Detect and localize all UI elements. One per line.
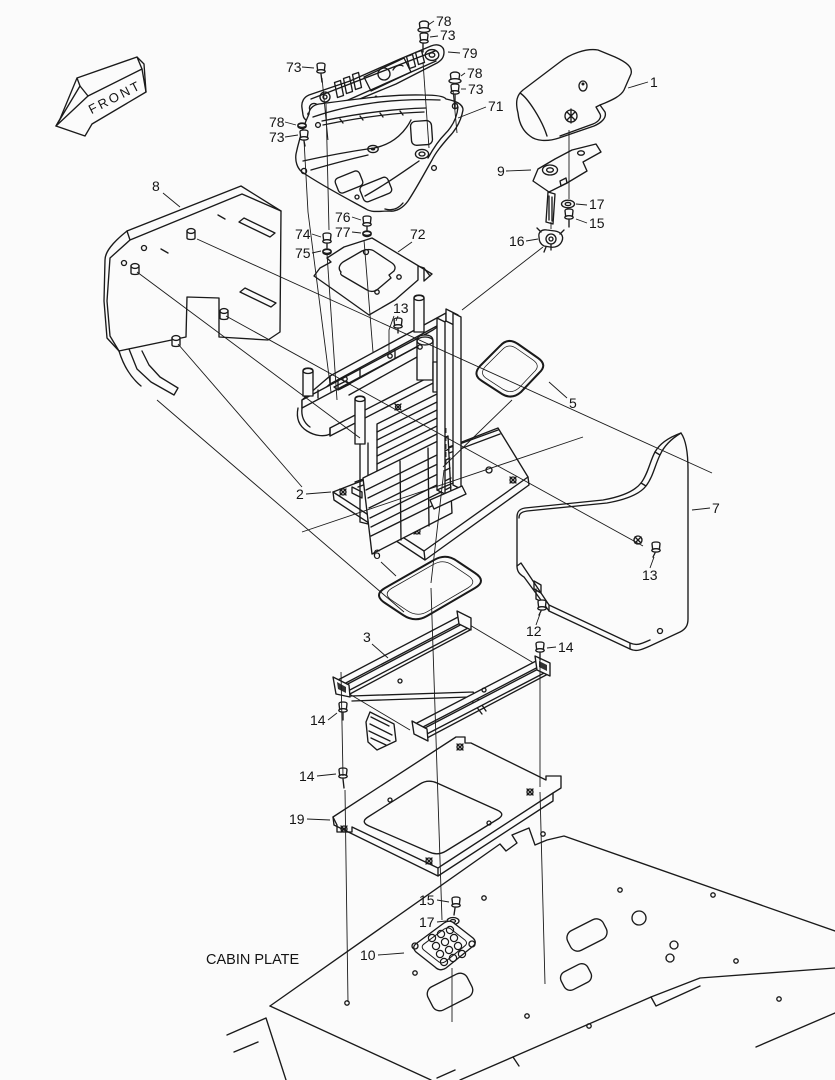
svg-text:17: 17	[419, 914, 435, 930]
svg-text:79: 79	[462, 45, 478, 61]
svg-text:17: 17	[589, 196, 605, 212]
svg-text:77: 77	[335, 224, 351, 240]
svg-text:14: 14	[310, 712, 326, 728]
svg-text:CABIN PLATE: CABIN PLATE	[206, 952, 300, 968]
svg-text:71: 71	[488, 98, 504, 114]
svg-text:10: 10	[360, 947, 376, 963]
svg-text:3: 3	[363, 629, 371, 645]
svg-text:7: 7	[712, 500, 720, 516]
svg-text:6: 6	[373, 546, 381, 562]
svg-text:75: 75	[295, 245, 311, 261]
svg-text:72: 72	[410, 226, 426, 242]
svg-text:8: 8	[152, 178, 160, 194]
svg-text:14: 14	[299, 768, 315, 784]
svg-text:15: 15	[589, 215, 605, 231]
svg-text:14: 14	[558, 639, 574, 655]
svg-text:9: 9	[497, 163, 505, 179]
svg-text:5: 5	[569, 395, 577, 411]
svg-text:78: 78	[269, 114, 285, 130]
svg-text:73: 73	[269, 129, 285, 145]
svg-text:73: 73	[286, 59, 302, 75]
svg-text:78: 78	[467, 65, 483, 81]
svg-text:13: 13	[642, 567, 658, 583]
svg-text:1: 1	[650, 74, 658, 90]
svg-text:13: 13	[393, 300, 409, 316]
svg-text:73: 73	[440, 27, 456, 43]
svg-text:16: 16	[509, 233, 525, 249]
svg-text:19: 19	[289, 811, 305, 827]
svg-text:15: 15	[419, 892, 435, 908]
svg-text:2: 2	[296, 486, 304, 502]
svg-text:73: 73	[468, 81, 484, 97]
svg-text:74: 74	[295, 226, 311, 242]
svg-text:76: 76	[335, 209, 351, 225]
svg-text:12: 12	[526, 623, 542, 639]
